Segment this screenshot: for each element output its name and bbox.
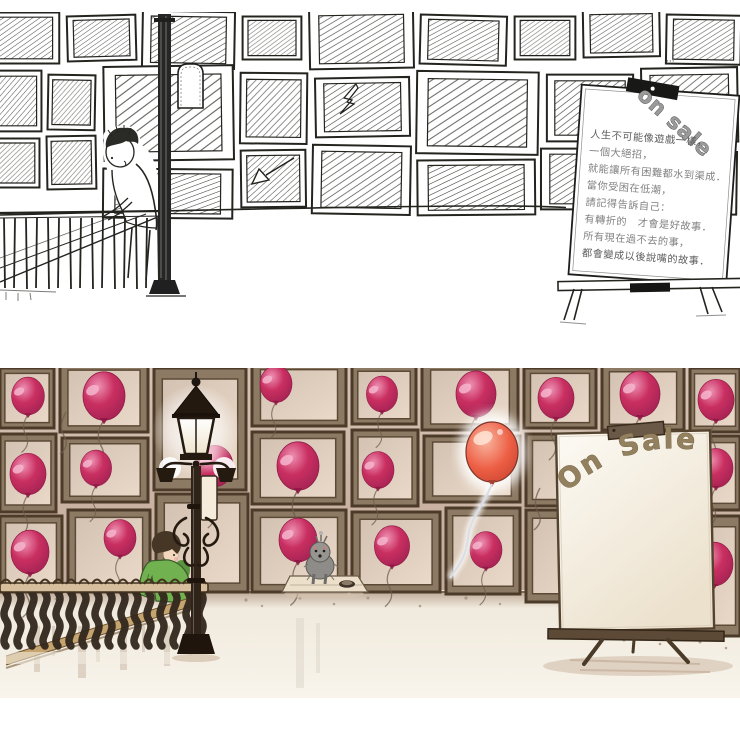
sketch-panel: ··· bbox=[0, 12, 740, 338]
picture-frame bbox=[309, 12, 414, 69]
lamp-sign-plate bbox=[178, 64, 203, 108]
picture-frame bbox=[48, 75, 96, 131]
on-sale-board: On Sale bbox=[549, 420, 714, 631]
easel-sketch bbox=[558, 278, 740, 324]
board-shadow bbox=[543, 656, 733, 676]
picture-frame bbox=[420, 15, 507, 66]
picture-frame bbox=[67, 15, 137, 62]
sign-board-sketch: on sale 人生不可能像遊戲一樣， 一個大絕招， 就能讓所有困難都水到渠成．… bbox=[568, 74, 740, 285]
picture-frame bbox=[666, 15, 740, 65]
sketch-panel-art: ··· bbox=[0, 12, 740, 338]
picture-frame bbox=[312, 145, 411, 215]
color-panel: On Sale bbox=[0, 368, 740, 698]
picture-frame bbox=[0, 139, 39, 188]
picture-frame bbox=[240, 73, 307, 144]
handrail bbox=[0, 583, 208, 592]
picture-frame bbox=[0, 13, 59, 64]
artwork-page: ··· bbox=[0, 0, 740, 740]
picture-frame bbox=[243, 16, 302, 59]
picture-frame bbox=[47, 136, 97, 190]
picture-frame bbox=[315, 77, 410, 137]
picture-frame bbox=[583, 12, 660, 57]
color-panel-art: On Sale bbox=[0, 368, 740, 698]
dots-doodle: ··· bbox=[666, 57, 675, 67]
picture-frame bbox=[241, 150, 306, 208]
lamp-sign-plate bbox=[201, 476, 217, 520]
picture-frame bbox=[515, 16, 576, 59]
picture-frame bbox=[0, 71, 41, 132]
picture-frame bbox=[416, 71, 539, 155]
